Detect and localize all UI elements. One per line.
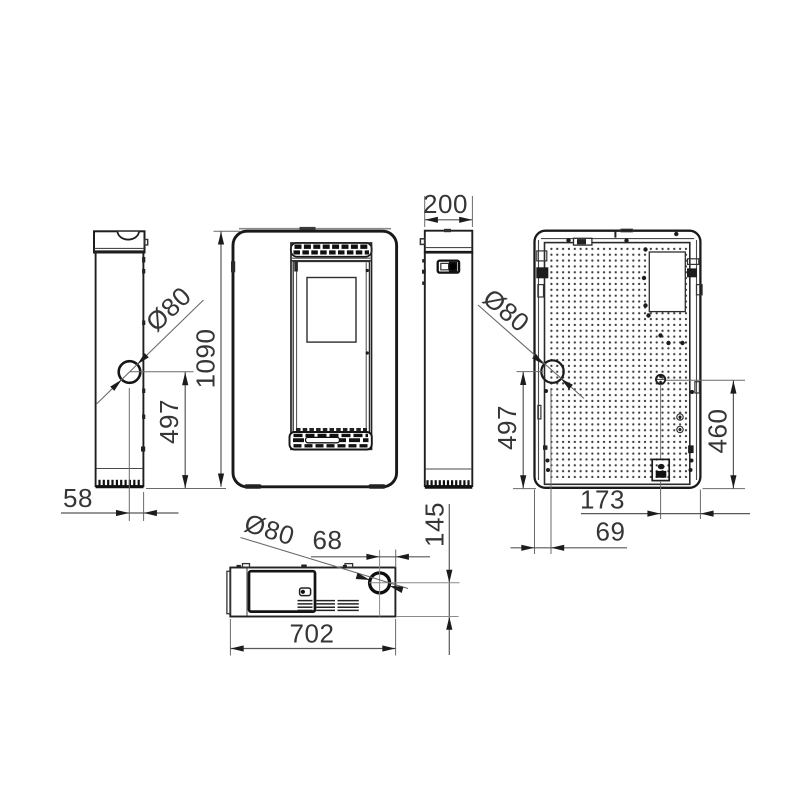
svg-text:200: 200 [423,189,468,219]
svg-text:69: 69 [596,516,626,546]
svg-text:145: 145 [419,502,449,547]
svg-text:460: 460 [703,409,733,454]
svg-text:1090: 1090 [190,329,220,389]
svg-text:68: 68 [313,525,343,555]
svg-text:702: 702 [290,618,335,648]
svg-text:497: 497 [154,399,184,444]
svg-text:497: 497 [492,405,522,450]
svg-text:173: 173 [580,484,625,514]
svg-text:58: 58 [63,483,93,513]
